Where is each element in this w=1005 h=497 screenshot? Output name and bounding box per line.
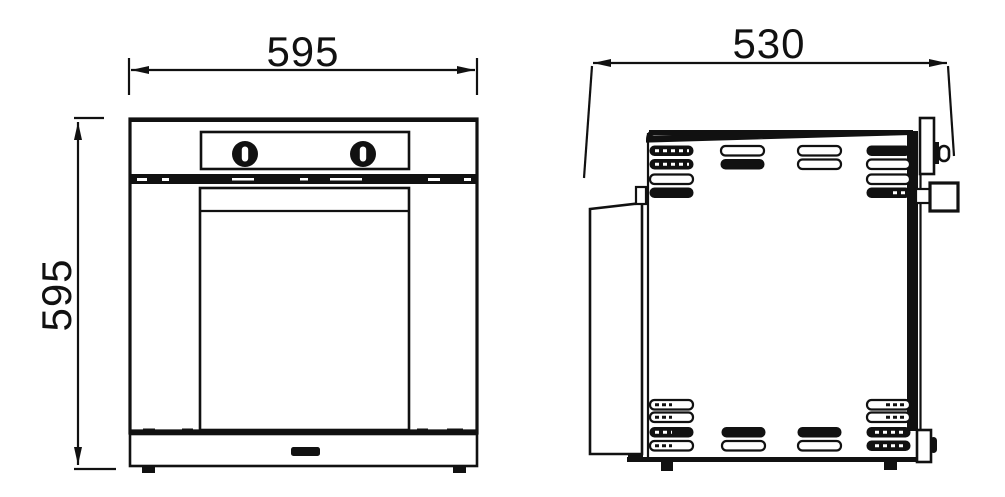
oven-knob-left xyxy=(232,141,258,167)
vent-slot xyxy=(867,146,910,156)
dimension-label-depth: 530 xyxy=(732,20,805,67)
vent-slot xyxy=(721,146,764,156)
door-bottom-hinge xyxy=(917,430,931,462)
vent-slot xyxy=(650,175,693,185)
handle-highlight xyxy=(330,178,362,181)
handle-highlight xyxy=(428,178,440,181)
arrowhead-right-icon xyxy=(457,66,475,74)
side-knob xyxy=(933,142,949,164)
handle-highlight xyxy=(300,178,308,181)
handle-highlight xyxy=(162,178,169,181)
oven-knob-right xyxy=(350,141,376,167)
control-fascia xyxy=(920,118,934,174)
bottom-vent-slots xyxy=(650,400,910,451)
arrowhead-left-icon xyxy=(131,66,149,74)
technical-drawing-canvas: 595 595 xyxy=(0,0,1005,497)
front-view: 595 595 xyxy=(33,28,478,473)
side-view: 530 xyxy=(584,20,958,471)
extension-line-left xyxy=(584,66,592,178)
bottom-edge xyxy=(627,457,930,462)
vent-slot xyxy=(798,441,841,451)
knob-slot xyxy=(242,147,248,162)
vent-slot xyxy=(721,160,764,170)
door-handle-bar xyxy=(130,174,477,184)
rear-panel xyxy=(590,203,642,454)
knob-slot xyxy=(360,147,366,162)
front-foot-left xyxy=(142,466,155,473)
handle-highlight xyxy=(464,178,471,181)
vent-slot xyxy=(722,428,765,438)
arrowhead-up-icon xyxy=(74,122,82,140)
body-top-edge xyxy=(129,118,478,122)
handle-highlight xyxy=(137,178,147,181)
handle-highlight xyxy=(232,178,254,181)
oven-dimension-drawing: 595 595 xyxy=(0,0,1005,497)
vent-slot xyxy=(650,188,693,198)
dimension-label-width: 595 xyxy=(266,28,339,75)
side-foot-left xyxy=(661,462,673,471)
side-handle xyxy=(930,183,958,211)
vent-slot xyxy=(867,160,910,170)
vent-slot xyxy=(867,441,910,451)
hinge-bump xyxy=(930,437,937,453)
top-edge-fill xyxy=(649,130,913,135)
top-vent-slots xyxy=(650,146,910,198)
dimension-label-height: 595 xyxy=(33,258,80,331)
arrowhead-left-icon xyxy=(593,59,611,67)
vent-slot xyxy=(798,428,841,438)
vent-slot xyxy=(867,428,910,438)
vent-slot xyxy=(798,160,841,170)
width-dimension: 595 xyxy=(129,28,477,95)
arrowhead-right-icon xyxy=(929,59,947,67)
extension-line-right xyxy=(948,66,954,156)
vent-slot xyxy=(798,146,841,156)
arrowhead-down-icon xyxy=(74,447,82,465)
front-foot-right xyxy=(453,466,466,473)
control-panel xyxy=(201,132,409,169)
rear-panel-notch xyxy=(636,187,646,204)
vent-slot xyxy=(867,175,910,185)
height-dimension: 595 xyxy=(33,118,116,469)
side-foot-right xyxy=(884,462,897,470)
brand-logo-mark xyxy=(291,447,320,456)
vent-slot xyxy=(722,441,765,451)
